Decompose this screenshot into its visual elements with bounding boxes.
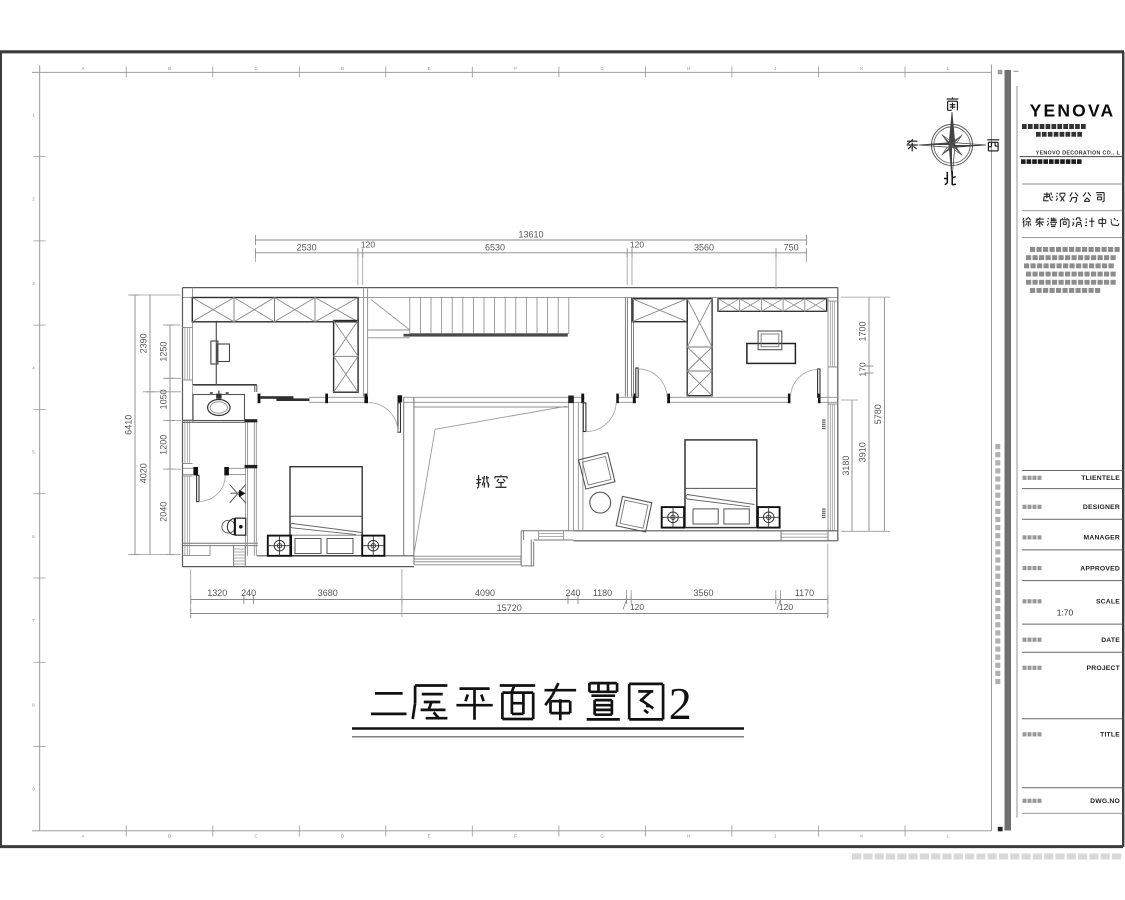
svg-text:4020: 4020: [139, 463, 149, 483]
svg-text:H: H: [687, 834, 690, 839]
svg-text:H: H: [687, 66, 690, 71]
svg-text:2390: 2390: [139, 333, 149, 353]
svg-text:SCALE: SCALE: [1096, 599, 1120, 606]
svg-text:3560: 3560: [694, 242, 714, 252]
svg-text:1250: 1250: [159, 342, 169, 362]
svg-text:4: 4: [32, 365, 35, 370]
svg-text:K: K: [860, 834, 863, 839]
svg-text:C: C: [254, 66, 258, 71]
svg-text:120: 120: [630, 602, 644, 612]
svg-text:750: 750: [784, 242, 799, 252]
svg-text:9: 9: [32, 787, 35, 792]
svg-text:A: A: [81, 834, 84, 839]
svg-text:K: K: [860, 66, 863, 71]
svg-text:6: 6: [32, 534, 35, 539]
svg-text:A: A: [81, 66, 84, 71]
svg-text:F: F: [514, 66, 517, 71]
svg-text:5780: 5780: [873, 404, 883, 424]
svg-text:240: 240: [241, 588, 256, 598]
svg-text:B: B: [168, 834, 171, 839]
svg-text:DESIGNER: DESIGNER: [1083, 504, 1120, 511]
svg-text:1180: 1180: [593, 588, 612, 598]
svg-text:3910: 3910: [858, 442, 868, 462]
svg-text:120: 120: [630, 240, 644, 250]
svg-text:2040: 2040: [159, 502, 169, 522]
svg-text:PROJECT: PROJECT: [1086, 665, 1120, 672]
svg-text:D: D: [341, 834, 345, 839]
svg-text:1050: 1050: [159, 389, 169, 409]
svg-text:E: E: [428, 834, 431, 839]
svg-text:2: 2: [32, 197, 35, 202]
svg-text:120: 120: [361, 240, 375, 250]
svg-text:DATE: DATE: [1101, 637, 1120, 644]
svg-text:YENOVO DECORATION CO., L: YENOVO DECORATION CO., L: [1036, 151, 1121, 157]
svg-text:B: B: [168, 66, 171, 71]
svg-text:L: L: [947, 834, 950, 839]
svg-text:E: E: [428, 66, 431, 71]
svg-text:1200: 1200: [159, 435, 169, 455]
svg-text:3180: 3180: [841, 456, 851, 476]
svg-text:6410: 6410: [124, 415, 134, 435]
svg-text:240: 240: [565, 588, 580, 598]
svg-text:1:70: 1:70: [1057, 608, 1074, 618]
svg-text:APPROVED: APPROVED: [1080, 565, 1120, 572]
svg-text:3560: 3560: [693, 588, 713, 598]
svg-text:1700: 1700: [858, 321, 868, 341]
svg-text:2530: 2530: [297, 242, 317, 252]
svg-text:15720: 15720: [497, 603, 522, 613]
svg-text:6530: 6530: [485, 242, 505, 252]
svg-text:5: 5: [32, 450, 35, 455]
svg-text:C: C: [254, 834, 258, 839]
svg-text:TITLE: TITLE: [1100, 732, 1120, 739]
svg-text:J: J: [774, 834, 776, 839]
svg-text:F: F: [514, 834, 517, 839]
svg-text:2: 2: [669, 678, 692, 729]
svg-text:TLIENTELE: TLIENTELE: [1081, 475, 1120, 482]
svg-text:7: 7: [32, 618, 35, 623]
svg-text:DWG.NO: DWG.NO: [1090, 798, 1120, 805]
svg-text:L: L: [947, 66, 950, 71]
svg-text:MANAGER: MANAGER: [1083, 535, 1120, 542]
svg-text:3: 3: [32, 281, 35, 286]
svg-text:G: G: [600, 66, 604, 71]
svg-text:170: 170: [858, 362, 868, 376]
svg-text:13610: 13610: [518, 230, 543, 240]
svg-text:1320: 1320: [207, 588, 227, 598]
svg-text:1: 1: [32, 112, 35, 117]
svg-text:8: 8: [32, 702, 35, 707]
svg-text:G: G: [600, 834, 604, 839]
svg-text:1170: 1170: [795, 588, 814, 598]
svg-text:J: J: [774, 66, 776, 71]
svg-text:D: D: [341, 66, 345, 71]
svg-text:3680: 3680: [318, 588, 338, 598]
svg-text:120: 120: [779, 602, 793, 612]
svg-text:4090: 4090: [475, 588, 495, 598]
svg-text:YENOVA: YENOVA: [1030, 101, 1116, 121]
